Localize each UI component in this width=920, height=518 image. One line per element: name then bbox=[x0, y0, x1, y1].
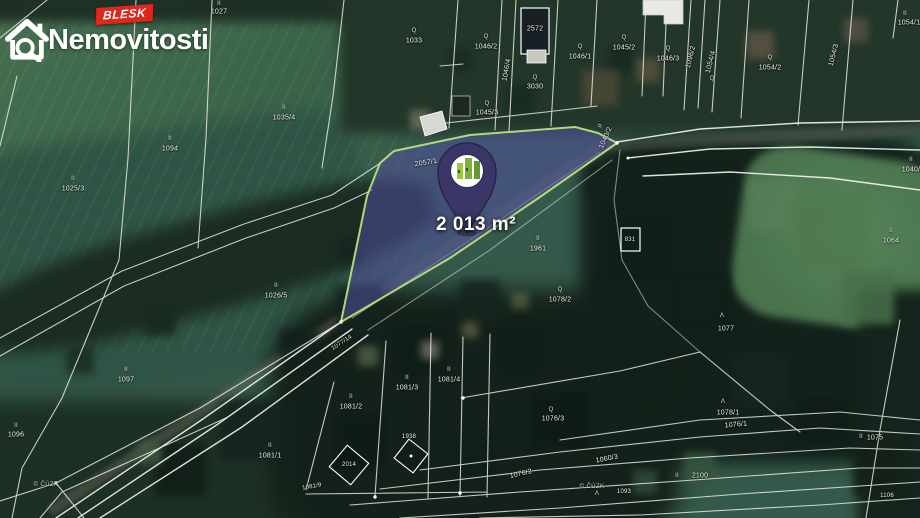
grass-symbol-icon: II bbox=[889, 228, 893, 234]
parcel-label: 3030 bbox=[527, 84, 543, 91]
parcel-label: 1054/4 bbox=[705, 50, 717, 74]
road-lines-inside-parcel bbox=[352, 152, 612, 330]
parcel-label: 1033 bbox=[406, 38, 422, 45]
village-strip-top bbox=[340, 0, 920, 133]
grass-symbol-icon: II bbox=[14, 423, 18, 429]
building-831 bbox=[621, 228, 640, 251]
parcel-label: 2100 bbox=[692, 473, 708, 480]
parcel-label: 1096/2 bbox=[685, 45, 697, 69]
parcel-label: 2057/1 bbox=[414, 158, 437, 168]
parcel-label: 1081/3 bbox=[396, 385, 419, 392]
parcel-label: 1046/3 bbox=[657, 56, 680, 63]
grass-symbol-icon: II bbox=[859, 434, 863, 440]
parcel-label: 1077/14 bbox=[331, 334, 354, 352]
map-canvas[interactable]: II1027Q1033Q1046/22572Q1046/1Q1045/2Q104… bbox=[0, 0, 920, 518]
grass-symbol-icon: II bbox=[909, 157, 913, 163]
brand-name: Nemovitosti bbox=[48, 24, 208, 57]
parcel-label: 1093 bbox=[617, 489, 631, 495]
parcel-label: 1081/4 bbox=[438, 377, 461, 384]
parcel-label: 1081/2 bbox=[340, 404, 363, 411]
parcel-label: 1054/2 bbox=[759, 65, 782, 72]
landuse-symbol-icon: Q bbox=[412, 28, 417, 34]
building-label: 1938 bbox=[402, 434, 416, 440]
parcel-label: 1094 bbox=[162, 146, 178, 153]
landuse-symbol-icon: Q bbox=[558, 287, 563, 293]
parcel-label: 1078/1 bbox=[717, 410, 740, 417]
building-2572 bbox=[521, 8, 549, 54]
building-shed bbox=[452, 96, 470, 116]
grass-symbol-icon: II bbox=[168, 136, 172, 142]
tree-symbol-icon: Λ bbox=[720, 313, 724, 319]
forest-bottom-left bbox=[0, 400, 300, 518]
landuse-symbol-icon: Q bbox=[485, 101, 490, 107]
grass-symbol-icon: II bbox=[536, 236, 540, 242]
parcel-label: 1035/4 bbox=[273, 115, 296, 122]
parcel-label: 1961 bbox=[530, 246, 546, 253]
building-label: 2572 bbox=[527, 26, 543, 33]
house-search-icon bbox=[4, 16, 50, 62]
field-mid-left bbox=[0, 103, 385, 406]
building-1938-dot bbox=[410, 455, 413, 458]
grass-symbol-icon: II bbox=[268, 443, 272, 449]
grass-symbol-icon: II bbox=[903, 11, 907, 17]
parcel-area-label: 2 013 m² bbox=[436, 214, 516, 236]
location-pin[interactable] bbox=[0, 0, 920, 518]
parcel-label: 1646 bbox=[449, 197, 463, 203]
parcel-label: 1096 bbox=[8, 432, 24, 439]
building-2014 bbox=[329, 445, 368, 484]
copyright-watermark: © ČÚZK bbox=[580, 484, 605, 490]
forest-right-edge bbox=[858, 290, 920, 518]
tree-band-diagonal bbox=[0, 155, 444, 379]
pin-chart-icon bbox=[457, 158, 480, 179]
building-small-house bbox=[420, 111, 447, 136]
landuse-symbol-icon: Q bbox=[768, 55, 773, 61]
parcel-label: 1026/5 bbox=[265, 293, 288, 300]
road-lines bbox=[56, 121, 920, 518]
landuse-symbol-icon: Q bbox=[622, 35, 627, 41]
boundary-lines bbox=[0, 0, 920, 518]
grass-symbol-icon: II bbox=[282, 105, 286, 111]
parcel-label: 1040/1 bbox=[902, 167, 920, 174]
grass-symbol-icon: II bbox=[405, 375, 409, 381]
grass-symbol-icon: II bbox=[124, 367, 128, 373]
parcel-label: 1045/3 bbox=[476, 110, 499, 117]
parcel-label: 1040/2 bbox=[598, 126, 614, 150]
parcel-label: 1060/3 bbox=[595, 453, 619, 464]
tree-symbol-icon: Λ bbox=[595, 491, 599, 497]
cadastral-lines-svg bbox=[0, 0, 920, 518]
grass-symbol-icon: II bbox=[675, 473, 679, 479]
parcel-label: 1106 bbox=[880, 493, 894, 499]
grass-symbol-icon: II bbox=[71, 176, 75, 182]
grass-symbol-icon: II bbox=[349, 394, 353, 400]
building-white-top-right bbox=[643, 0, 683, 24]
grass-symbol-icon: II bbox=[447, 367, 451, 373]
landuse-symbol-icon: Q bbox=[710, 76, 715, 82]
parcel-label: 1054/1 bbox=[898, 20, 920, 27]
tree-symbol-icon: Λ bbox=[721, 399, 725, 405]
forest-center bbox=[270, 290, 680, 518]
copyright-watermark: © ČÚZK bbox=[34, 482, 59, 488]
landuse-symbol-icon: Q bbox=[549, 407, 554, 413]
building-label: 2014 bbox=[342, 462, 356, 468]
parcel-label: 1078/2 bbox=[549, 297, 572, 304]
parcel-label: 1097 bbox=[118, 377, 134, 384]
landuse-symbol-icon: Q bbox=[666, 46, 671, 52]
parcel-label: 1075 bbox=[867, 435, 883, 442]
parcel-label: 1046/4 bbox=[502, 58, 513, 81]
parcel-label: 1076/2 bbox=[509, 468, 533, 480]
parcel-label: 1077 bbox=[718, 326, 734, 333]
parcel-label: 1046/1 bbox=[569, 54, 592, 61]
landuse-symbol-icon: Q bbox=[484, 34, 489, 40]
parcel-label: 1076/3 bbox=[542, 416, 565, 423]
grass-symbol-icon: II bbox=[597, 123, 604, 129]
road-surface-diagonal bbox=[47, 140, 608, 516]
labels-layer: II1027Q1033Q1046/22572Q1046/1Q1045/2Q104… bbox=[0, 0, 920, 518]
building-2572-annex bbox=[527, 50, 546, 63]
brand-badge: BLESK bbox=[96, 4, 154, 25]
brand-logo: BLESK Nemovitosti bbox=[4, 4, 234, 64]
parcel-label: 1081/1 bbox=[259, 453, 282, 460]
pin-circle bbox=[451, 155, 484, 188]
landuse-symbol-icon: Q bbox=[578, 44, 583, 50]
landuse-symbol-icon: Q bbox=[533, 75, 538, 81]
field-bright-right bbox=[726, 140, 920, 338]
parcel-label: 1076/1 bbox=[724, 421, 747, 430]
parcel-label: 1081/9 bbox=[302, 482, 322, 491]
forest-right bbox=[580, 138, 920, 463]
parcel-label: 1025/3 bbox=[62, 186, 85, 193]
boundary-junction-dots bbox=[54, 141, 629, 498]
building-1938 bbox=[394, 439, 428, 473]
grass-symbol-icon: II bbox=[274, 283, 278, 289]
road-surface-right bbox=[603, 123, 920, 152]
parcel-label: 1054/3 bbox=[828, 43, 840, 67]
buildings bbox=[329, 0, 683, 485]
parcel-label: 1064 bbox=[883, 238, 899, 245]
parcel-label: 1046/2 bbox=[475, 44, 498, 51]
building-label: 831 bbox=[625, 237, 636, 243]
parcel-label: 1045/2 bbox=[613, 45, 636, 52]
